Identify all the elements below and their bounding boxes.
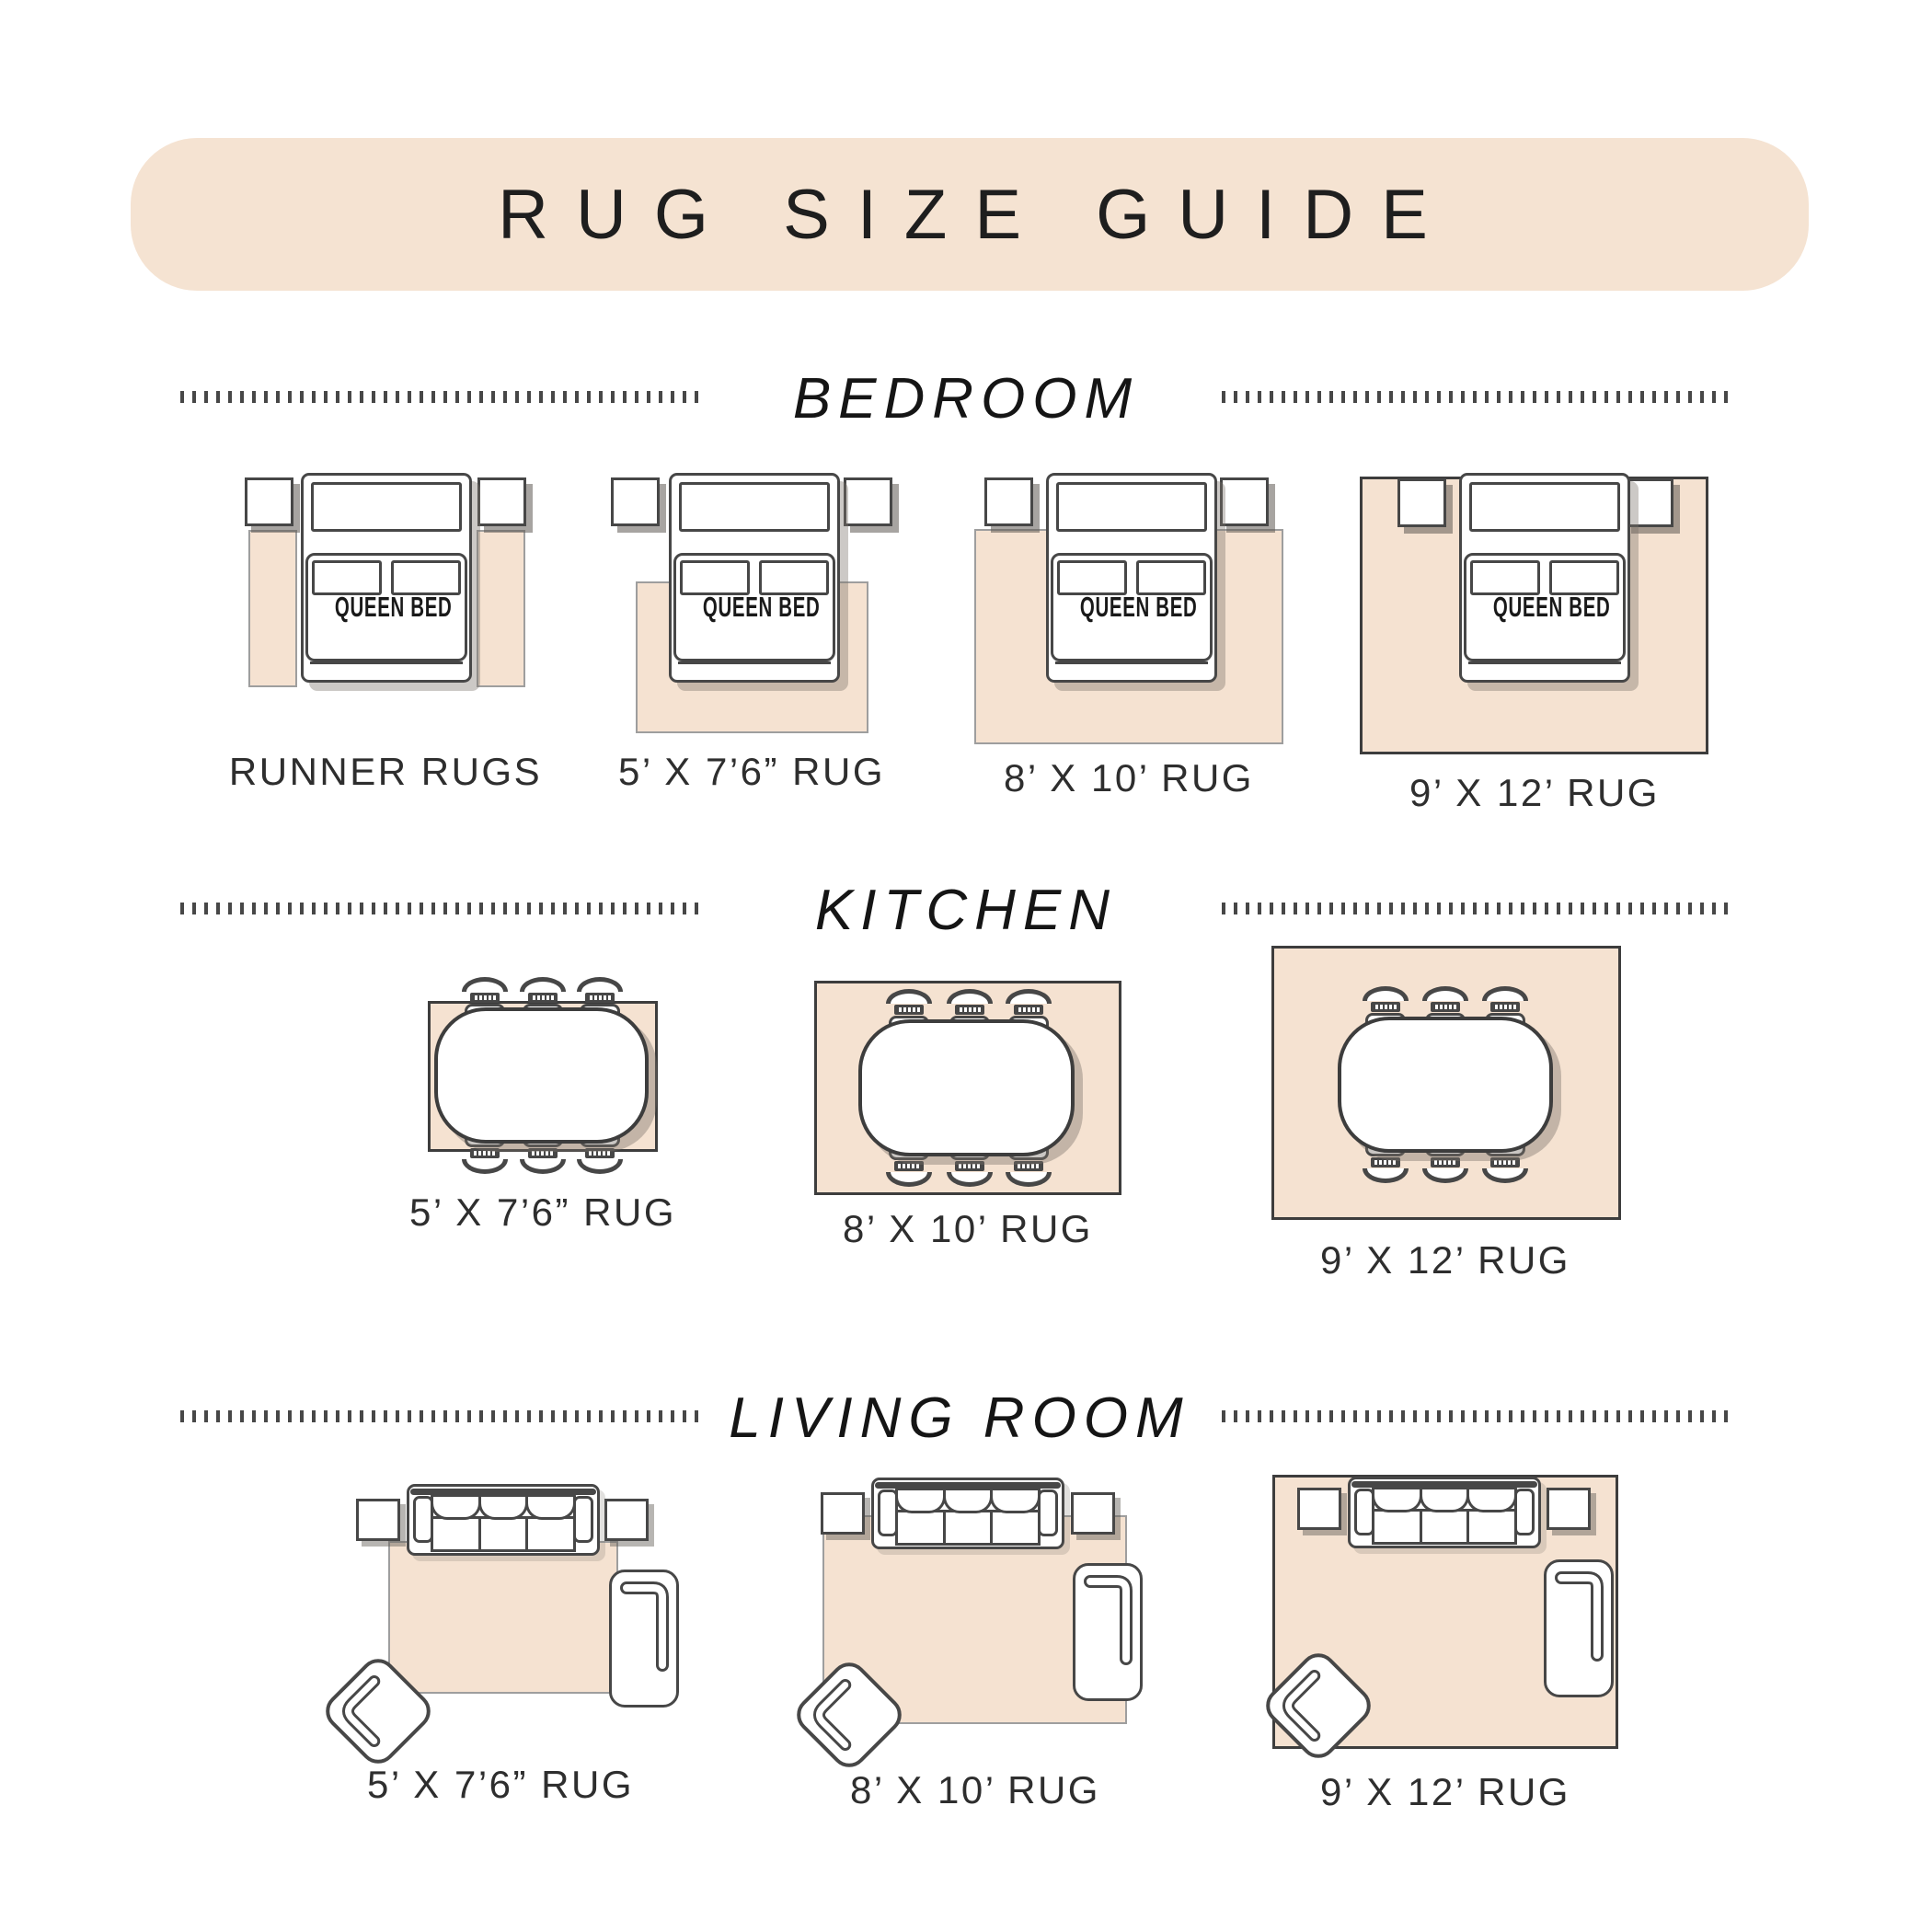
bed-footboard [1468, 661, 1621, 674]
chaise-chair [1544, 1559, 1614, 1697]
sofa [407, 1484, 600, 1556]
sofa-arm [1354, 1489, 1374, 1535]
queen-bed: QUEEN BED [301, 473, 472, 683]
sofa-arm [573, 1496, 593, 1543]
nightstand [611, 477, 660, 526]
chair-back [1363, 986, 1409, 1001]
end-table [604, 1499, 649, 1541]
chair-cushion [894, 1161, 924, 1171]
chair-back [1363, 1168, 1409, 1183]
section-title-living-room: LIVING ROOM [684, 1386, 1236, 1451]
sofa-back-edge [1351, 1481, 1537, 1488]
chair-cushion [955, 1161, 984, 1171]
sofa-arm [1514, 1489, 1535, 1535]
runner-rug [248, 530, 297, 687]
chair-cushion [894, 1005, 924, 1015]
size-label: 5’ X 7’6” RUG [298, 1763, 703, 1807]
bed-body: QUEEN BED [673, 553, 835, 661]
chair-back [1422, 1168, 1468, 1183]
sofa-back-cushions [431, 1494, 576, 1520]
bed-footboard [310, 661, 463, 674]
queen-bed: QUEEN BED [669, 473, 840, 683]
chair-cushion [1371, 1157, 1400, 1167]
nightstand [984, 477, 1033, 526]
bed-headboard [1056, 482, 1207, 532]
chaise-chair [609, 1570, 679, 1708]
chair-back [577, 977, 623, 992]
bed-label: QUEEN BED [1080, 591, 1183, 624]
chair-back [886, 989, 932, 1004]
section-title-bedroom: BEDROOM [736, 366, 1196, 431]
chaise-armrest [612, 1572, 676, 1705]
bed-headboard [679, 482, 830, 532]
chair-back [577, 1159, 623, 1174]
chair-back [886, 1172, 932, 1187]
chair-back [1482, 986, 1528, 1001]
bed-label: QUEEN BED [703, 591, 806, 624]
chair-cushion [470, 993, 500, 1003]
chair-cushion [1371, 1002, 1400, 1012]
chair-back [947, 1172, 993, 1187]
bed-footboard [1055, 661, 1208, 674]
chair-back [462, 1159, 508, 1174]
dining-table [858, 1019, 1075, 1156]
size-label: 8’ X 10’ RUG [773, 1768, 1178, 1812]
size-label: 5’ X 7’6” RUG [340, 1190, 745, 1235]
bed-label: QUEEN BED [335, 591, 438, 624]
end-table [1547, 1488, 1591, 1530]
dotted-divider-right [1222, 903, 1733, 914]
chair-cushion [955, 1005, 984, 1015]
bed-headboard [1469, 482, 1620, 532]
nightstand [844, 477, 892, 526]
dining-table [1338, 1017, 1553, 1153]
chair-back [1482, 1168, 1528, 1183]
sofa-seat-cushions [1372, 1509, 1517, 1545]
chair-cushion [1431, 1157, 1460, 1167]
bed-body: QUEEN BED [1464, 553, 1626, 661]
chair-cushion [528, 1148, 558, 1158]
sofa-seat-cushions [431, 1516, 576, 1552]
sofa-arm [878, 1489, 898, 1536]
size-label: 8’ X 10’ RUG [926, 756, 1331, 800]
chair-cushion [1014, 1005, 1043, 1015]
size-label: RUNNER RUGS [183, 750, 588, 794]
chair-cushion [528, 993, 558, 1003]
bed-body: QUEEN BED [1051, 553, 1213, 661]
bed-headboard [311, 482, 462, 532]
rug [388, 1541, 618, 1694]
runner-rug [477, 530, 525, 687]
end-table [1297, 1488, 1341, 1530]
size-label: 5’ X 7’6” RUG [549, 750, 954, 794]
chair-cushion [1431, 1002, 1460, 1012]
rug-size-guide-page: RUG SIZE GUIDE BEDROOM QUEEN BED RUNNER … [0, 0, 1932, 1932]
queen-bed: QUEEN BED [1046, 473, 1217, 683]
end-table [821, 1492, 865, 1535]
bed-body: QUEEN BED [305, 553, 467, 661]
chair-cushion [1014, 1161, 1043, 1171]
nightstand [1625, 478, 1673, 527]
dotted-divider-left [180, 1410, 701, 1422]
bed-label: QUEEN BED [1493, 591, 1596, 624]
chair-back [520, 977, 566, 992]
sofa [1348, 1477, 1541, 1548]
nightstand [477, 477, 526, 526]
chair-back [1422, 986, 1468, 1001]
chair-back [520, 1159, 566, 1174]
dining-table [434, 1007, 649, 1144]
sofa-seat-cushions [895, 1510, 1041, 1546]
chair-cushion [470, 1148, 500, 1158]
size-label: 8’ X 10’ RUG [765, 1207, 1170, 1251]
chair-back [462, 977, 508, 992]
dotted-divider-left [180, 391, 701, 403]
header-banner: RUG SIZE GUIDE [131, 138, 1809, 291]
size-label: 9’ X 12’ RUG [1243, 1770, 1648, 1814]
dotted-divider-right [1222, 391, 1733, 403]
dotted-divider-left [180, 903, 701, 914]
nightstand [1397, 478, 1446, 527]
chair-back [1006, 1172, 1052, 1187]
end-table [1071, 1492, 1115, 1535]
chair-cushion [585, 1148, 615, 1158]
sofa-back-cushions [895, 1488, 1041, 1513]
bed-footboard [678, 661, 831, 674]
chair-cushion [585, 993, 615, 1003]
queen-bed: QUEEN BED [1459, 473, 1630, 683]
chaise-armrest [1075, 1566, 1140, 1698]
sofa-back-cushions [1372, 1487, 1517, 1512]
chair-cushion [1490, 1157, 1520, 1167]
chair-back [1006, 989, 1052, 1004]
chair-cushion [1490, 1002, 1520, 1012]
page-title: RUG SIZE GUIDE [484, 175, 1455, 255]
chair-back [947, 989, 993, 1004]
sofa [871, 1478, 1064, 1549]
dotted-divider-right [1222, 1410, 1733, 1422]
sofa-back-edge [875, 1482, 1061, 1489]
sofa-arm [1038, 1489, 1058, 1536]
section-title-kitchen: KITCHEN [736, 878, 1196, 943]
size-label: 9’ X 12’ RUG [1243, 1238, 1648, 1282]
nightstand [245, 477, 293, 526]
size-label: 9’ X 12’ RUG [1332, 771, 1737, 815]
sofa-arm [413, 1496, 433, 1543]
end-table [356, 1499, 400, 1541]
chaise-chair [1073, 1563, 1143, 1701]
nightstand [1220, 477, 1269, 526]
sofa-back-edge [410, 1489, 596, 1495]
chaise-armrest [1547, 1562, 1611, 1695]
